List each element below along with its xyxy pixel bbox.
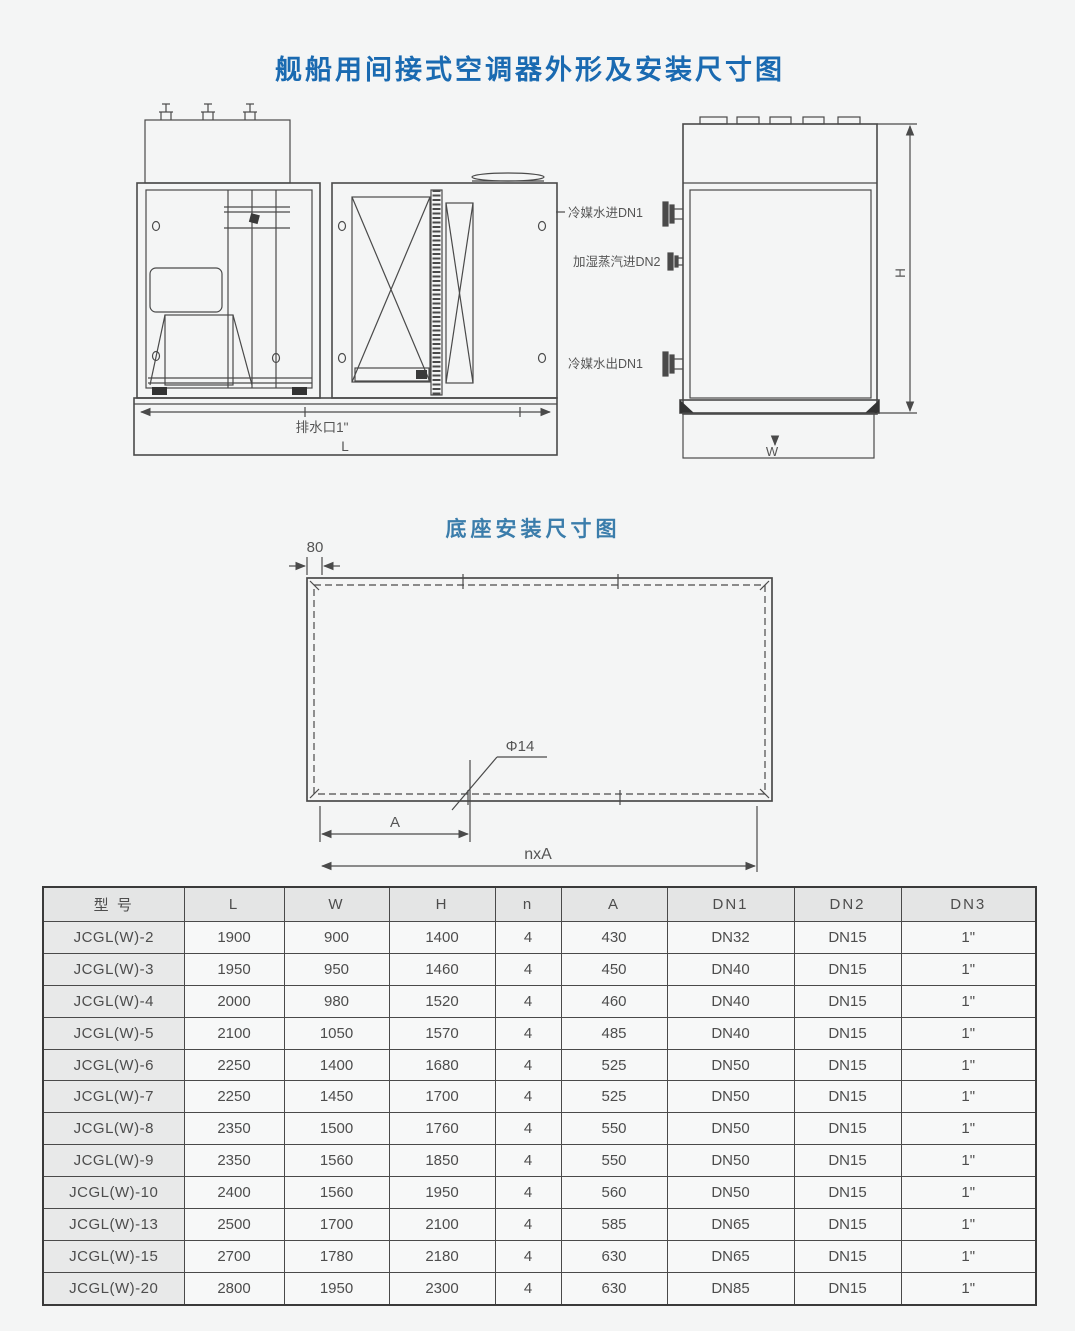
base-drawing-title: 底座安装尺寸图	[446, 517, 621, 541]
table-cell: DN40	[667, 953, 794, 985]
table-cell: 4	[495, 1240, 561, 1272]
table-header-row: 型 号LWHnADN1DN2DN3	[43, 887, 1036, 922]
table-row: JCGL(W)-52100105015704485DN40DN151"	[43, 1017, 1036, 1049]
table-cell: 1700	[389, 1081, 495, 1113]
table-cell: JCGL(W)-9	[43, 1145, 184, 1177]
table-cell: 1"	[901, 1113, 1036, 1145]
table-cell: DN15	[794, 1113, 901, 1145]
table-cell: 4	[495, 1209, 561, 1241]
dim-H-label: H	[893, 268, 908, 278]
table-cell: 430	[561, 922, 667, 954]
table-cell: 585	[561, 1209, 667, 1241]
dim-W-label: W	[766, 444, 779, 459]
table-cell: 1950	[184, 953, 284, 985]
table-cell: JCGL(W)-13	[43, 1209, 184, 1241]
table-cell: 1700	[284, 1209, 389, 1241]
table-cell: 2300	[389, 1272, 495, 1304]
table-cell: 2700	[184, 1240, 284, 1272]
table-cell: DN15	[794, 1177, 901, 1209]
table-cell: 560	[561, 1177, 667, 1209]
table-cell: 1950	[389, 1177, 495, 1209]
table-row: JCGL(W)-202800195023004630DN85DN151"	[43, 1272, 1036, 1304]
table-cell: 1"	[901, 1240, 1036, 1272]
table-row: JCGL(W)-152700178021804630DN65DN151"	[43, 1240, 1036, 1272]
table-cell: 1680	[389, 1049, 495, 1081]
table-cell: DN65	[667, 1240, 794, 1272]
table-cell: DN65	[667, 1209, 794, 1241]
table-cell: 1460	[389, 953, 495, 985]
table-cell: 1400	[389, 922, 495, 954]
table-cell: 950	[284, 953, 389, 985]
table-cell: 1520	[389, 985, 495, 1017]
table-cell: 550	[561, 1145, 667, 1177]
table-cell: DN50	[667, 1113, 794, 1145]
table-cell: JCGL(W)-6	[43, 1049, 184, 1081]
table-cell: 485	[561, 1017, 667, 1049]
column-header: L	[184, 887, 284, 922]
table-cell: JCGL(W)-3	[43, 953, 184, 985]
top-pipe-stubs	[159, 104, 257, 120]
table-cell: 1450	[284, 1081, 389, 1113]
pipe-stub-dn1-out	[663, 352, 683, 376]
table-cell: DN15	[794, 1081, 901, 1113]
table-cell: 1760	[389, 1113, 495, 1145]
table-cell: 2400	[184, 1177, 284, 1209]
table-cell: DN15	[794, 1209, 901, 1241]
table-cell: JCGL(W)-2	[43, 922, 184, 954]
table-cell: 2180	[389, 1240, 495, 1272]
table-cell: 550	[561, 1113, 667, 1145]
steam-in-label: 加湿蒸汽进DN2	[573, 254, 661, 269]
table-cell: 1"	[901, 922, 1036, 954]
table-row: JCGL(W)-3195095014604450DN40DN151"	[43, 953, 1036, 985]
hole-label: Φ14	[506, 738, 535, 755]
table-cell: 1"	[901, 1145, 1036, 1177]
drain-label: 排水口1"	[296, 420, 349, 435]
table-cell: DN50	[667, 1049, 794, 1081]
outline-drawing: 排水口1" L 冷媒水进DN1 加湿蒸汽进DN2 冷媒水出DN1	[0, 90, 1075, 475]
base-frame	[307, 574, 772, 805]
table-cell: DN85	[667, 1272, 794, 1304]
column-header: DN2	[794, 887, 901, 922]
table-cell: 1900	[184, 922, 284, 954]
table-row: JCGL(W)-62250140016804525DN50DN151"	[43, 1049, 1036, 1081]
table-cell: JCGL(W)-7	[43, 1081, 184, 1113]
table-cell: 1950	[284, 1272, 389, 1304]
page-title: 舰船用间接式空调器外形及安装尺寸图	[0, 48, 1060, 87]
table-cell: 1"	[901, 1209, 1036, 1241]
table-cell: DN15	[794, 922, 901, 954]
table-row: JCGL(W)-132500170021004585DN65DN151"	[43, 1209, 1036, 1241]
table-row: JCGL(W)-82350150017604550DN50DN151"	[43, 1113, 1036, 1145]
table-cell: 2800	[184, 1272, 284, 1304]
column-header: H	[389, 887, 495, 922]
table-cell: 1"	[901, 1017, 1036, 1049]
column-header: 型 号	[43, 887, 184, 922]
table-cell: 4	[495, 985, 561, 1017]
table-cell: DN15	[794, 985, 901, 1017]
table-cell: 4	[495, 1272, 561, 1304]
table-cell: JCGL(W)-10	[43, 1177, 184, 1209]
dim-80: 80	[289, 539, 340, 575]
dim-nxA-label: nxA	[524, 846, 552, 863]
table-cell: JCGL(W)-5	[43, 1017, 184, 1049]
table-cell: 1050	[284, 1017, 389, 1049]
table-cell: 4	[495, 922, 561, 954]
table-cell: 1780	[284, 1240, 389, 1272]
hole-callout: Φ14	[452, 738, 547, 810]
pipe-stub-dn1-in	[663, 202, 683, 226]
table-cell: JCGL(W)-15	[43, 1240, 184, 1272]
table-cell: JCGL(W)-4	[43, 985, 184, 1017]
table-cell: 4	[495, 1145, 561, 1177]
table-cell: 1400	[284, 1049, 389, 1081]
table-cell: 900	[284, 922, 389, 954]
chilled-water-in-label: 冷媒水进DN1	[568, 206, 643, 220]
spec-table: 型 号LWHnADN1DN2DN3 JCGL(W)-21900900140044…	[42, 886, 1037, 1306]
table-cell: 1500	[284, 1113, 389, 1145]
table-cell: DN15	[794, 1145, 901, 1177]
table-row: JCGL(W)-92350156018504550DN50DN151"	[43, 1145, 1036, 1177]
pedestal-drawing: 排水口1" L	[134, 398, 557, 455]
table-cell: 4	[495, 1113, 561, 1145]
table-cell: 1"	[901, 1049, 1036, 1081]
table-cell: DN15	[794, 1049, 901, 1081]
table-cell: 1"	[901, 953, 1036, 985]
table-cell: 2100	[184, 1017, 284, 1049]
table-cell: 2250	[184, 1081, 284, 1113]
table-cell: 450	[561, 953, 667, 985]
table-cell: DN40	[667, 1017, 794, 1049]
table-cell: 4	[495, 1049, 561, 1081]
table-cell: 525	[561, 1081, 667, 1113]
column-header: DN3	[901, 887, 1036, 922]
table-cell: DN15	[794, 953, 901, 985]
column-header: DN1	[667, 887, 794, 922]
table-cell: 4	[495, 1081, 561, 1113]
table-cell: 1"	[901, 985, 1036, 1017]
table-cell: 4	[495, 1017, 561, 1049]
end-view-drawing: W H	[680, 117, 917, 459]
table-cell: DN32	[667, 922, 794, 954]
table-cell: 1"	[901, 1081, 1036, 1113]
base-installation-drawing: 底座安装尺寸图 80 Φ14 A	[0, 505, 1075, 885]
table-cell: 1850	[389, 1145, 495, 1177]
table-cell: 1570	[389, 1017, 495, 1049]
port-labels: 冷媒水进DN1 加湿蒸汽进DN2 冷媒水出DN1	[568, 206, 661, 371]
table-cell: JCGL(W)-8	[43, 1113, 184, 1145]
table-cell: 460	[561, 985, 667, 1017]
table-cell: 1560	[284, 1177, 389, 1209]
table-row: JCGL(W)-2190090014004430DN32DN151"	[43, 922, 1036, 954]
table-cell: 2350	[184, 1113, 284, 1145]
chilled-water-out-label: 冷媒水出DN1	[568, 357, 643, 371]
table-cell: DN15	[794, 1017, 901, 1049]
table-row: JCGL(W)-4200098015204460DN40DN151"	[43, 985, 1036, 1017]
table-cell: DN40	[667, 985, 794, 1017]
column-header: n	[495, 887, 561, 922]
table-row: JCGL(W)-102400156019504560DN50DN151"	[43, 1177, 1036, 1209]
table-cell: 980	[284, 985, 389, 1017]
table-cell: DN15	[794, 1240, 901, 1272]
table-cell: 2100	[389, 1209, 495, 1241]
table-row: JCGL(W)-72250145017004525DN50DN151"	[43, 1081, 1036, 1113]
table-cell: 4	[495, 1177, 561, 1209]
table-cell: 1"	[901, 1177, 1036, 1209]
dim-L-label: L	[341, 439, 349, 454]
table-cell: 2350	[184, 1145, 284, 1177]
table-cell: DN50	[667, 1177, 794, 1209]
column-header: W	[284, 887, 389, 922]
dim-nxA: nxA	[322, 806, 757, 872]
column-header: A	[561, 887, 667, 922]
spec-table-body: JCGL(W)-2190090014004430DN32DN151"JCGL(W…	[43, 922, 1036, 1305]
dim-A-label: A	[390, 814, 400, 831]
table-cell: 2000	[184, 985, 284, 1017]
table-cell: 525	[561, 1049, 667, 1081]
table-cell: 630	[561, 1272, 667, 1304]
table-cell: 1"	[901, 1272, 1036, 1304]
table-cell: JCGL(W)-20	[43, 1272, 184, 1304]
table-cell: 630	[561, 1240, 667, 1272]
table-cell: DN15	[794, 1272, 901, 1304]
side-view-drawing	[137, 104, 320, 398]
table-cell: 2250	[184, 1049, 284, 1081]
table-cell: DN50	[667, 1081, 794, 1113]
front-view-drawing	[332, 173, 557, 398]
table-cell: DN50	[667, 1145, 794, 1177]
dim-80-label: 80	[307, 539, 324, 556]
pipe-stub-dn2	[668, 253, 683, 270]
table-cell: 4	[495, 953, 561, 985]
table-cell: 1560	[284, 1145, 389, 1177]
table-cell: 2500	[184, 1209, 284, 1241]
